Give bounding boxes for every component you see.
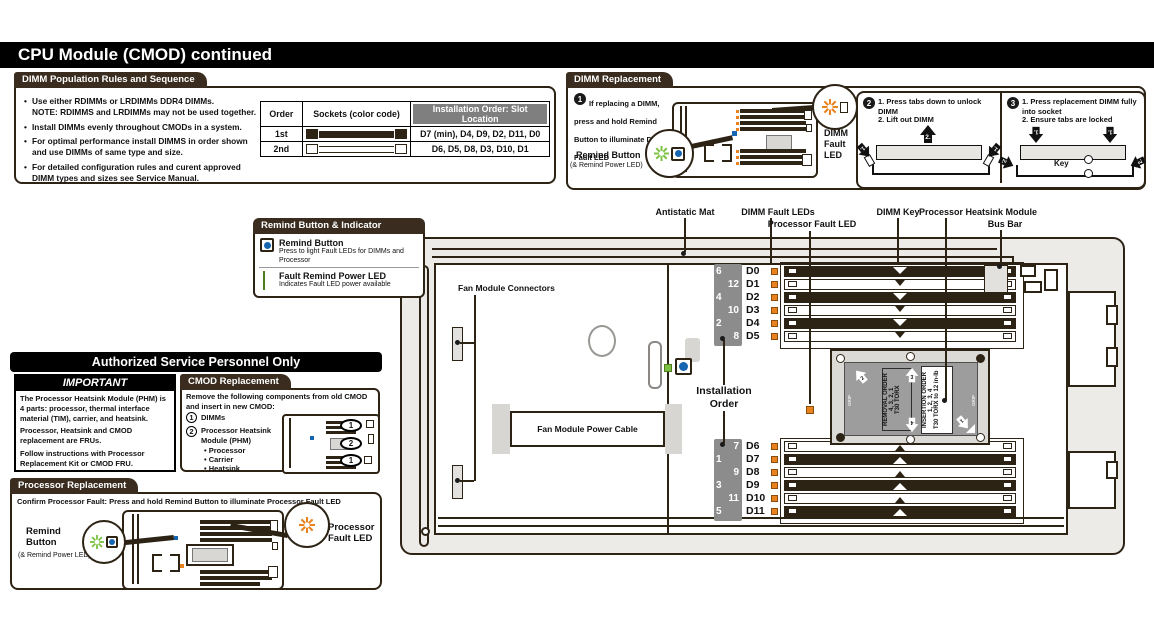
remind-button-target (732, 131, 737, 136)
socket-graphic-white (302, 142, 411, 157)
right-connector-block (1068, 451, 1116, 509)
important-paragraph: The Processor Heatsink Module (PHM) is 4… (20, 394, 170, 423)
phm-screw (906, 435, 915, 444)
leader-dot (720, 336, 725, 341)
dimm-fault-led-magnifier (812, 84, 858, 130)
remind-button-magnifier (645, 129, 694, 178)
population-order-table: Order Sockets (color code) Installation … (260, 101, 550, 157)
steps-2-3-box: 2 1. Press tabs down to unlock DIMM 2. L… (856, 91, 1146, 189)
dimm-socket (784, 318, 1016, 329)
dimm-slot-label: D4 (746, 318, 759, 329)
bracket-mark (152, 554, 162, 572)
dimm-socket (784, 279, 1016, 290)
service-diagram-page: CPU Module (CMOD) continued DIMM Populat… (0, 0, 1154, 625)
panel-header: DIMM Population Rules and Sequence (14, 72, 207, 88)
processor-heatsink-module: REMOVAL ORDER 4, 3, 2, 1 T30 TORX INSERT… (830, 349, 990, 445)
processor-board-diagram (122, 510, 284, 590)
order-number: 9 (716, 467, 739, 478)
panel-header: DIMM Replacement (566, 72, 673, 88)
dimm-row-d4: D4 (402, 318, 1123, 329)
lift-arrow: 2. (920, 125, 936, 144)
phm-label: Processor Heatsink Module (912, 207, 1044, 218)
dimm-population-rules-panel: DIMM Population Rules and Sequence Use e… (14, 72, 556, 184)
power-led-legend-desc: Indicates Fault LED power available (279, 281, 419, 290)
dimm-slot-label: D10 (746, 493, 765, 504)
table-row: 1st D7 (min), D4, D9, D2, D11, D0 (261, 127, 550, 142)
cmod-replacement-panel: CMOD Replacement Remove the following co… (180, 374, 380, 472)
antistatic-mat-edge (438, 525, 1064, 527)
cmod-item-2: 2 Processor Heatsink Module (PHM) (186, 426, 279, 446)
bracket-mark (170, 554, 180, 572)
cmod-item-2-label: Processor Heatsink Module (PHM) (201, 426, 279, 446)
panel-header: Processor Replacement (10, 478, 138, 494)
cmod-callout-2: 2 (340, 437, 362, 450)
dimm-row-d5: D5 (402, 331, 1123, 342)
processor-fault-magnifier (284, 502, 330, 548)
dimm-graphic (1020, 145, 1126, 160)
dimm-row-d7: D7 (402, 454, 1123, 465)
phm-arrow-4: 4 (906, 417, 919, 432)
dimm-key-notch (895, 306, 905, 312)
dimm-row-d2: D2 (402, 292, 1123, 303)
dimm-fault-led (771, 307, 778, 314)
dimm-socket (784, 480, 1016, 491)
dimm-socket (784, 493, 1016, 504)
dimm-replacement-panel: DIMM Replacement 1 If replacing a DIMM, … (566, 72, 1146, 190)
remind-button-legend-icon (260, 238, 274, 252)
dimm-key-notch (895, 497, 905, 503)
panel-header: CMOD Replacement (180, 374, 291, 390)
order-cell: 1st (261, 127, 303, 142)
phm-arrow-3: 3 (906, 368, 919, 383)
order-number: 1 (716, 454, 739, 465)
insert-arrow: 1. (1029, 126, 1043, 143)
dimm-row-d11: D11 (402, 506, 1123, 517)
board-bracket (648, 341, 662, 389)
processor-fault-led-label: Processor Fault LED (762, 219, 862, 230)
dimm-fault-led-label: DIMM Fault LED (824, 128, 848, 160)
leader-line (474, 295, 476, 481)
socket-graphic (872, 163, 990, 175)
cmod-subitem: • Heatsink (204, 464, 240, 474)
processor-fault-led-target (180, 564, 184, 568)
col-order: Order (261, 102, 303, 127)
dimm-fault-led (771, 508, 778, 515)
authorized-header: Authorized Service Personnel Only (10, 352, 382, 372)
fault-remind-power-led (664, 364, 672, 372)
col-sockets: Sockets (color code) (302, 102, 411, 127)
table-row: 2nd D6, D5, D8, D3, D10, D1 (261, 142, 550, 157)
remind-power-led-label: (& Remind Power LED) (18, 552, 91, 561)
orange-starburst-icon (299, 517, 315, 533)
step2-badge: 2 (863, 97, 875, 109)
divider (259, 267, 419, 268)
step3-line1: 1. Press replacement DIMM fully into soc… (1022, 97, 1138, 117)
leader-dot (455, 478, 460, 483)
step2: 2 1. Press tabs down to unlock DIMM 2. L… (858, 93, 1000, 183)
important-title: IMPORTANT (16, 376, 174, 391)
fan-connectors-label: Fan Module Connectors (458, 283, 568, 293)
remind-button-target (174, 536, 178, 540)
dimm-slot-label: D2 (746, 292, 759, 303)
circled-2: 2 (186, 426, 197, 437)
dimm-socket (784, 454, 1016, 465)
important-paragraph: Processor, Heatsink and CMOD replacement… (20, 426, 170, 446)
bracket-mark (722, 144, 732, 162)
dimm-row-d6: D6 (402, 441, 1123, 452)
order-number: 12 (716, 279, 739, 290)
dimm-fault-led (771, 469, 778, 476)
col-install-order: Installation Order: Slot Location (411, 102, 550, 127)
dimm-socket (784, 331, 1016, 342)
dimm-slot-label: D6 (746, 441, 759, 452)
dimm-row-d9: D9 (402, 480, 1123, 491)
order-number: 6 (716, 266, 739, 277)
dimm-key-notch (895, 471, 905, 477)
step1-board-diagram (672, 102, 818, 178)
dimm-row-d3: D3 (402, 305, 1123, 316)
important-panel: IMPORTANT The Processor Heatsink Module … (14, 374, 176, 472)
edge-connector (1044, 269, 1058, 291)
order-number: 2 (716, 318, 739, 329)
dimm-slot-label: D11 (746, 506, 765, 517)
connector-notch (1106, 305, 1118, 325)
important-paragraph: Follow instructions with Processor Repla… (20, 449, 170, 469)
key-circle (1084, 155, 1093, 164)
rule-item: Use either RDIMMs or LRDIMMs DDR4 DIMMs.… (24, 96, 262, 118)
processor-intro: Confirm Processor Fault: Press and hold … (17, 497, 377, 507)
dimm-fault-led (771, 333, 778, 340)
dimm-fault-led (771, 482, 778, 489)
dimm-fault-led (771, 456, 778, 463)
order-number: 5 (716, 506, 739, 517)
leader-dot (720, 442, 725, 447)
dimm-socket-white-icon (306, 144, 408, 154)
orange-starburst-icon (822, 99, 838, 115)
insert-arrow: 1. (1103, 126, 1117, 143)
phm-heatsink-surface: REMOVAL ORDER 4, 3, 2, 1 T30 TORX INSERT… (844, 362, 978, 436)
dimm-slot-label: D5 (746, 331, 759, 342)
green-starburst-icon (654, 146, 669, 161)
dimm-socket (784, 292, 1016, 303)
leader-line (460, 342, 474, 344)
antistatic-mat-edge (432, 248, 997, 250)
slots-cell: D7 (min), D4, D9, D2, D11, D0 (411, 127, 550, 142)
step1-badge: 1 (574, 93, 586, 105)
key-circle (1084, 169, 1093, 178)
leader-line (1000, 230, 1002, 266)
dimm-row-d0: D0 (402, 266, 1123, 277)
order-number: 10 (716, 305, 739, 316)
processor-replacement-panel: Processor Replacement Confirm Processor … (10, 478, 382, 590)
cmod-item-1-label: DIMMs (201, 413, 225, 423)
order-number: 4 (716, 292, 739, 303)
edge-connector (1024, 281, 1042, 293)
dimm-key-notch (893, 293, 907, 300)
dimm-socket-dark-icon (306, 129, 408, 139)
dimm-row-d10: D10 (402, 493, 1123, 504)
remind-indicator-panel: Remind Button & Indicator Remind Button … (253, 218, 425, 298)
bracket-mark (704, 144, 714, 162)
leader-line (684, 218, 686, 252)
phm-grip-label: GRIP (971, 387, 976, 413)
step3: 3 1. Press replacement DIMM fully into s… (1002, 93, 1144, 183)
dimm-row-d8: D8 (402, 467, 1123, 478)
dimm-socket (784, 506, 1016, 517)
connector-notch (1106, 347, 1118, 367)
dimm-slot-label: D8 (746, 467, 759, 478)
processor-outline (766, 135, 792, 150)
dimm-key-notch (893, 483, 907, 490)
panel-body: Confirm Processor Fault: Press and hold … (10, 492, 382, 590)
step3-line2: 2. Ensure tabs are locked (1022, 115, 1112, 125)
dimm-fault-led (771, 495, 778, 502)
leader-dot (455, 340, 460, 345)
bus-bar-label: Bus Bar (975, 219, 1035, 230)
antistatic-mat-label: Antistatic Mat (645, 207, 725, 218)
dimm-fault-led (771, 320, 778, 327)
rule-item: For detailed configuration rules and cur… (24, 162, 262, 184)
panel-body: Use either RDIMMs or LRDIMMs DDR4 DIMMs.… (14, 86, 556, 184)
remind-button-legend-desc: Press to light Fault LEDs for DIMMs and … (279, 248, 419, 266)
dimm-socket (784, 467, 1016, 478)
installation-order-label: Installation Order (684, 385, 764, 410)
fan-cable-label: Fan Module Power Cable (537, 424, 638, 434)
leader-line (809, 231, 811, 404)
leader-line (723, 411, 725, 443)
processor-fault-led (806, 406, 814, 414)
dimm-key-notch (893, 509, 907, 516)
remind-button (675, 358, 692, 375)
dimm-key-notch (893, 267, 907, 274)
cmod-board-diagram: 1 2 1 (282, 414, 380, 474)
page-title: CPU Module (CMOD) continued (0, 42, 1154, 68)
leader-line (723, 340, 725, 385)
circled-1: 1 (186, 412, 197, 423)
leader-line (945, 218, 947, 400)
remind-button-icon (106, 536, 118, 548)
dimm-graphic (876, 145, 982, 160)
dimm-key-notch (895, 280, 905, 286)
cmod-callout-1: 1 (340, 419, 362, 432)
dimm-fault-led (771, 443, 778, 450)
rule-item: Install DIMMs evenly throughout CMODs in… (24, 122, 262, 133)
dimm-slot-label: D0 (746, 266, 759, 277)
dimm-slot-label: D9 (746, 480, 759, 491)
dimm-key-notch (893, 319, 907, 326)
dimm-fault-led (771, 294, 778, 301)
dimm-key-notch (895, 445, 905, 451)
top-order-panel: 6 12 4 10 2 8 (714, 264, 742, 346)
dimm-slot-label: D1 (746, 279, 759, 290)
phm-arrow-2: 2 (851, 367, 871, 387)
order-number: 11 (716, 493, 739, 504)
remind-button-magnifier (82, 520, 126, 564)
panel-header: Remind Button & Indicator (253, 218, 425, 234)
cmod-callout-1b: 1 (340, 454, 362, 467)
bottom-order-panel: 7 1 9 3 11 5 (714, 439, 742, 521)
phm-grip-label: GRIP (847, 387, 852, 413)
panel-body: Remind Button Press to light Fault LEDs … (253, 232, 425, 298)
step2-line2: 2. Lift out DIMM (878, 115, 934, 125)
dimm-fault-led (771, 268, 778, 275)
panel-body: Remove the following components from old… (180, 388, 380, 472)
step2-line1: 1. Press tabs down to unlock DIMM (878, 97, 990, 117)
dimm-key-notch (893, 457, 907, 464)
remind-button-label: Remind Button (576, 150, 641, 161)
step3-badge: 3 (1007, 97, 1019, 109)
latch-hook (421, 527, 430, 536)
dimm-socket (784, 305, 1016, 316)
dimm-slot-label: D7 (746, 454, 759, 465)
dimm-fault-leds-label: DIMM Fault LEDs (733, 207, 823, 218)
leader-dot (997, 264, 1002, 269)
connector-notch (1106, 461, 1118, 479)
green-starburst-icon (90, 535, 104, 549)
remind-power-led-label: (& Remind Power LED) (570, 162, 643, 171)
dimm-socket (784, 266, 1016, 277)
phm-insertion-order-label: INSERTION ORDER 1, 2, 3, 4 T30 TORX to 1… (921, 366, 953, 434)
leader-dot (681, 251, 686, 256)
remind-button-label: Remind Button (26, 526, 61, 549)
phm-screw (906, 352, 915, 361)
cmod-board-diagram: Fan Module Connectors Fan Module Power C… (400, 237, 1125, 555)
dimm-key-notch (895, 332, 905, 338)
socket-graphic (1016, 165, 1134, 177)
key-label: Key (1054, 159, 1069, 168)
rule-item: For optimal performance install DIMMS in… (24, 136, 262, 158)
bus-bar (984, 265, 1008, 293)
panel-body: 1 If replacing a DIMM, press and hold Re… (566, 86, 1146, 190)
cmod-item-1: 1 DIMMs (186, 412, 225, 423)
slots-cell: D6, D5, D8, D3, D10, D1 (411, 142, 550, 157)
leader-line (897, 218, 899, 262)
order-number: 3 (716, 480, 739, 491)
edge-connector (1020, 265, 1036, 277)
population-rules-list: Use either RDIMMs or LRDIMMs DDR4 DIMMs.… (24, 96, 262, 187)
cmod-intro: Remove the following components from old… (186, 392, 376, 412)
dimm-fault-led (771, 281, 778, 288)
leader-dot (942, 398, 947, 403)
processor-fault-led-label: Processor Fault LED (328, 522, 374, 545)
power-led-legend-icon (263, 272, 265, 290)
remind-button-icon (671, 147, 685, 161)
socket-graphic-dark (302, 127, 411, 142)
dimm-end-icon (840, 102, 848, 113)
order-cell: 2nd (261, 142, 303, 157)
antistatic-mat-edge (432, 256, 1014, 258)
dimm-slot-label: D3 (746, 305, 759, 316)
